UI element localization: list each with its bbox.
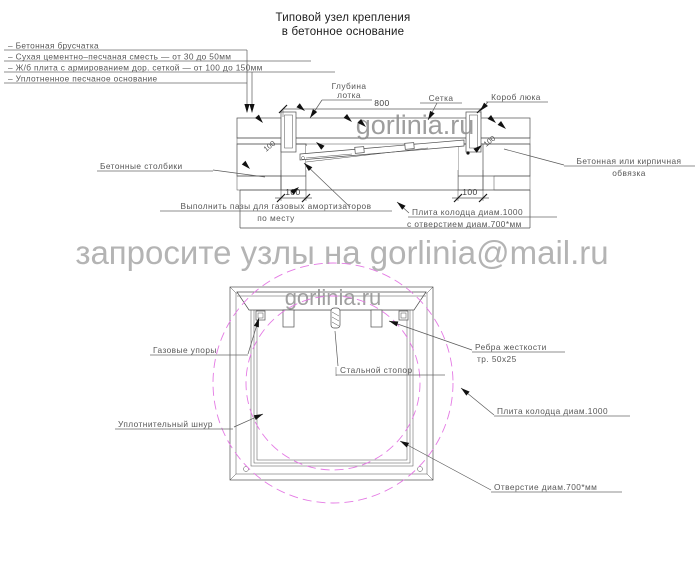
legend: – Бетонная брусчатка – Сухая цементно–пе… [4, 41, 335, 114]
svg-text:обвязка: обвязка [612, 168, 646, 178]
svg-text:Выполнить пазы для газовых амо: Выполнить пазы для газовых амортизаторов [181, 201, 372, 211]
page-title: Типовой узел крепления в бетонное основа… [276, 12, 411, 38]
svg-text:Отверстие диам.700*мм: Отверстие диам.700*мм [494, 482, 597, 492]
label-plita-kolodtsa-plan: Плита колодца диам.1000 [459, 386, 630, 416]
svg-text:лотка: лотка [337, 90, 361, 100]
gas-strut-mount-left [256, 311, 265, 320]
label-korob-lyuka: Короб люка [478, 92, 548, 113]
svg-text:с отверстием диам.700*мм: с отверстием диам.700*мм [407, 219, 522, 229]
label-betonnye-stolbiki: Бетонные столбики [97, 161, 265, 177]
gas-strut-mount-right [399, 311, 408, 320]
dim-100-right-text: 100 [462, 187, 477, 197]
legend-item-4: – Уплотненное песчаное основание [8, 74, 158, 84]
dim-rot-left: 100 [262, 139, 277, 154]
dim-800-text: 800 [374, 98, 389, 108]
steel-stopper [331, 308, 340, 328]
plan-view: gorlinia.ru Газовые упоры Стальной стопо… [115, 263, 630, 503]
svg-text:Плита колодца диам.1000: Плита колодца диам.1000 [497, 406, 608, 416]
stiffener-tab-right [371, 310, 382, 327]
watermark-gorlinia-plan: gorlinia.ru [285, 285, 382, 310]
watermark-email: запросите узлы на gorlinia@mail.ru [75, 234, 608, 271]
corner-pin-right [418, 467, 423, 472]
svg-text:Газовые упоры: Газовые упоры [153, 345, 217, 355]
svg-text:Ребра жесткости: Ребра жесткости [475, 342, 547, 352]
svg-text:Короб люка: Короб люка [491, 92, 541, 102]
svg-text:Стальной стопор: Стальной стопор [340, 365, 413, 375]
sand-base-left [237, 176, 281, 190]
svg-text:Уплотнительный шнур: Уплотнительный шнур [118, 419, 213, 429]
legend-item-3: – Ж/б плита с армированием дор. сеткой —… [8, 63, 263, 73]
drawing-sheet: Типовой узел крепления в бетонное основа… [0, 0, 700, 568]
legend-item-2: – Сухая цементно–песчаная сместь — от 30… [8, 52, 231, 62]
title-line-1: Типовой узел крепления [276, 12, 411, 24]
cross-section-view: gorlinia.ru 800 100 100 [97, 81, 695, 229]
svg-text:тр. 50х25: тр. 50х25 [477, 354, 517, 364]
svg-text:Плита колодца диам.1000: Плита колодца диам.1000 [412, 207, 523, 217]
title-line-2: в бетонное основание [282, 26, 404, 38]
stiffener-tab-left [283, 310, 294, 327]
svg-text:Бетонная или кирпичная: Бетонная или кирпичная [576, 156, 681, 166]
cad-drawing: Типовой узел крепления в бетонное основа… [0, 0, 700, 568]
dim-rot-right: 100 [482, 134, 497, 149]
legend-item-1: – Бетонная брусчатка [8, 41, 99, 51]
legend-connector-lines [244, 50, 254, 113]
svg-text:Сетка: Сетка [429, 93, 454, 103]
watermark-gorlinia-section: gorlinia.ru [356, 110, 475, 140]
label-obvyazka: Бетонная или кирпичная обвязка [504, 149, 695, 178]
sand-base-right [494, 176, 530, 190]
svg-text:Бетонные столбики: Бетонные столбики [100, 161, 183, 171]
svg-text:по месту: по месту [257, 213, 295, 223]
label-plita-kolodtsa-section: Плита колодца диам.1000 с отверстием диа… [395, 200, 557, 229]
